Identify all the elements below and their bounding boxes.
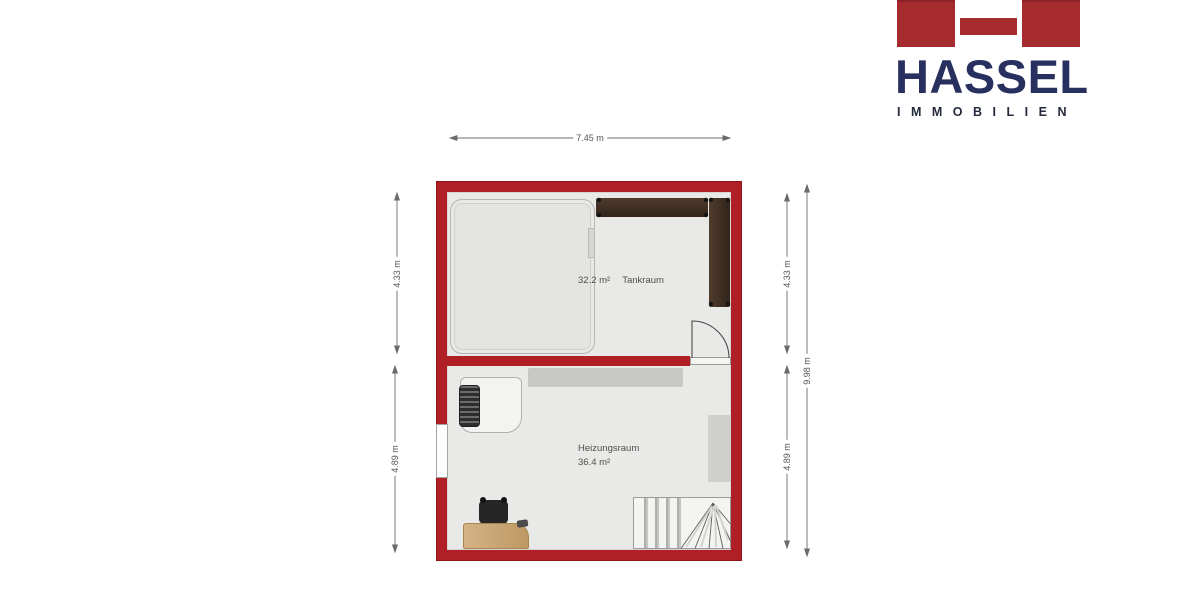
door-threshold [690, 357, 731, 365]
logo-bar-icon [960, 18, 1017, 35]
shelf-vertical [709, 198, 730, 307]
dim-width-top: 7.45 m [573, 133, 607, 143]
wall-divider [437, 356, 690, 366]
shelf-horizontal [596, 198, 708, 217]
counter [528, 368, 683, 387]
tank [450, 199, 595, 354]
brand-subtitle: IMMOBILIEN [897, 105, 1092, 119]
chimney-block [708, 415, 731, 482]
tank-valve [588, 228, 595, 258]
logo-square-right-icon [1022, 0, 1080, 47]
brand-logo-mark [894, 0, 1086, 48]
heizungsraum-name: Heizungsraum [578, 442, 639, 456]
window-left [436, 424, 448, 478]
tankraum-area: 32.2 m² [578, 275, 610, 286]
brand-logo: HASSEL IMMOBILIEN [894, 0, 1086, 130]
chair [479, 500, 508, 524]
dim-right-lower: 4.89 m [782, 440, 792, 474]
room-label-heizungsraum: Heizungsraum 36.4 m² [578, 442, 639, 470]
tankraum-name: Tankraum [622, 275, 664, 286]
floorplan [437, 182, 741, 560]
dim-left-lower: 4.89 m [390, 442, 400, 476]
room-label-tankraum: 32.2 m²Tankraum [578, 275, 664, 286]
logo-square-left-icon [897, 0, 955, 47]
brand-name: HASSEL [895, 52, 1085, 101]
dim-right-total: 9.98 m [802, 354, 812, 388]
page: HASSEL IMMOBILIEN [0, 0, 1200, 600]
radiator [459, 385, 480, 427]
dim-left-upper: 4.33 m [392, 257, 402, 291]
dim-right-upper: 4.33 m [782, 257, 792, 291]
heizungsraum-area: 36.4 m² [578, 456, 639, 470]
